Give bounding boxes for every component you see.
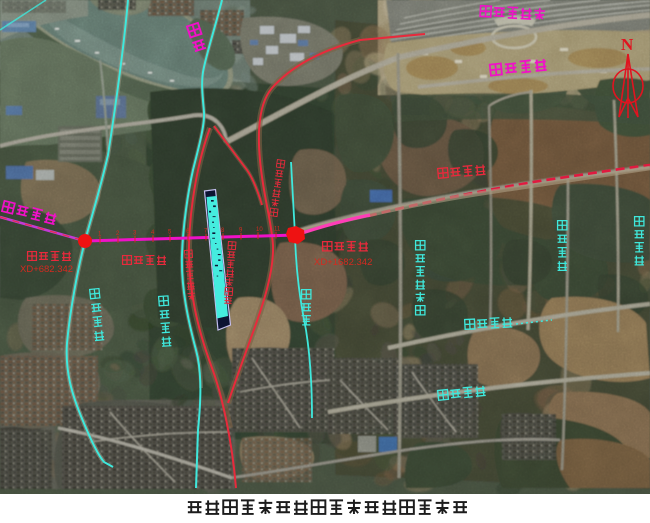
- svg-text:11: 11: [274, 227, 281, 233]
- svg-text:XD+682.342: XD+682.342: [20, 264, 73, 275]
- svg-text:10: 10: [256, 227, 263, 233]
- svg-text:N: N: [621, 35, 634, 54]
- svg-text:XD+1682.342: XD+1682.342: [314, 257, 372, 268]
